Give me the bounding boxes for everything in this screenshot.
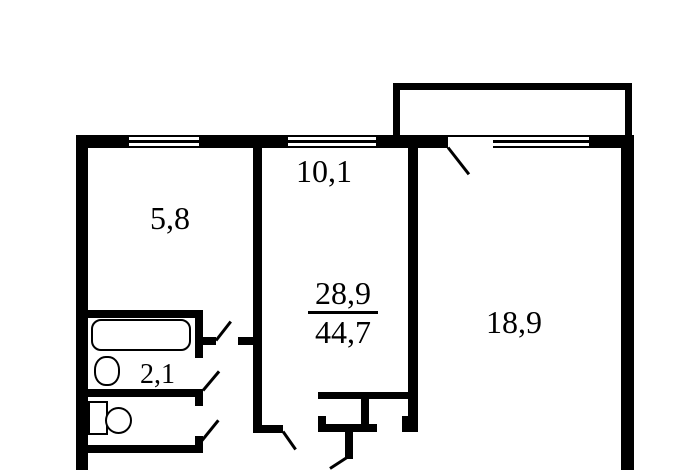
- balcony-wall-right: [625, 83, 632, 135]
- window-kitchen: [129, 137, 199, 146]
- toilet-bowl: [105, 407, 132, 434]
- wall-bathroom-top: [88, 310, 203, 318]
- wall-bathroom-middle-endcap: [195, 397, 203, 406]
- window-room-small-mullion: [288, 140, 376, 143]
- partition-rooms: [408, 148, 418, 432]
- door-leaf-hall: [282, 431, 297, 451]
- exterior-wall-left: [76, 135, 88, 470]
- wall-bathroom-top-endcap: [195, 318, 203, 358]
- partition-corridor-jog: [262, 425, 283, 433]
- window-room-large-mullion: [493, 140, 589, 143]
- wall-wc-bottom: [88, 445, 203, 453]
- floor-plan: 5,8 10,1 18,9 2,1 28,9 44,7: [0, 0, 700, 470]
- area-label-kitchen: 5,8: [150, 202, 190, 234]
- balcony-wall-left: [393, 83, 400, 135]
- closet-wall-top: [318, 392, 415, 399]
- door-leaf-wc: [201, 419, 220, 441]
- door-stub-kitchen-right: [238, 337, 253, 345]
- door-stub-kitchen-left: [203, 337, 216, 345]
- closet-bottom-left-endcap: [318, 416, 326, 424]
- door-leaf-entry: [329, 456, 347, 469]
- exterior-wall-right: [621, 135, 634, 470]
- area-summary-living: 28,9: [308, 277, 378, 314]
- balcony-wall-top: [393, 83, 632, 90]
- window-room-small: [288, 137, 376, 146]
- sink: [94, 356, 120, 386]
- area-label-bathroom: 2,1: [140, 361, 175, 389]
- wall-bathroom-middle: [88, 389, 203, 397]
- area-label-room-small: 10,1: [296, 155, 352, 187]
- window-room-large: [493, 137, 589, 146]
- bathtub: [91, 319, 191, 351]
- door-leaf-kitchen: [215, 321, 232, 342]
- closet-bottom-right-endcap: [402, 416, 410, 424]
- door-leaf-bathroom: [202, 370, 220, 391]
- closet-wall-bottom-left: [318, 424, 377, 432]
- area-label-room-large: 18,9: [486, 306, 542, 338]
- area-summary-total: 44,7: [308, 314, 378, 348]
- partition-corridor: [253, 148, 262, 433]
- balcony-door-leaf: [447, 147, 470, 176]
- balcony-door-opening: [448, 137, 493, 148]
- closet-wall-bottom-right: [402, 424, 415, 432]
- window-kitchen-mullion: [129, 140, 199, 143]
- hall-wall-stub: [345, 432, 353, 459]
- area-summary: 28,9 44,7: [308, 277, 378, 348]
